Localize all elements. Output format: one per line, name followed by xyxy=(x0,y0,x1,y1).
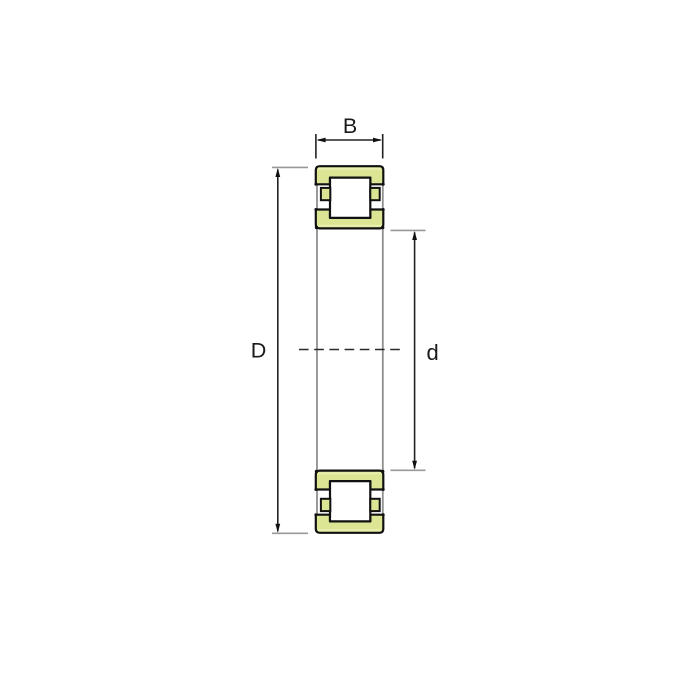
svg-text:d: d xyxy=(426,340,438,365)
svg-text:D: D xyxy=(251,338,267,362)
svg-text:B: B xyxy=(343,114,357,138)
